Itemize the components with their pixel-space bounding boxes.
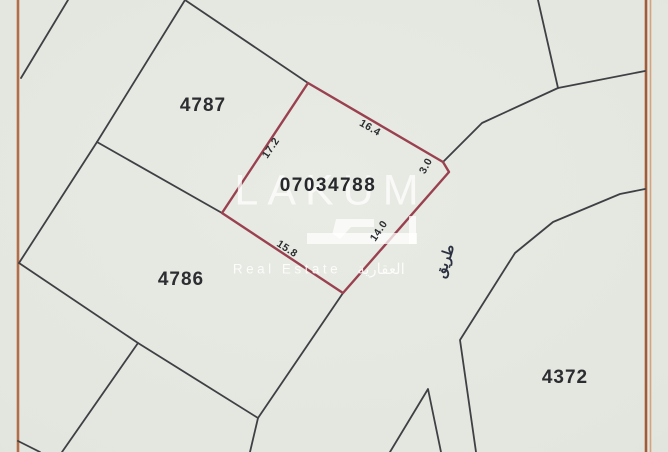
dim-label-16-4: 16.4 [357, 117, 382, 139]
plot-label-4372: 4372 [542, 367, 588, 389]
plot-label-4787: 4787 [180, 95, 226, 117]
highlighted-plot-number: 07034788 [280, 175, 377, 197]
plot-label-4786: 4786 [158, 269, 204, 291]
map-labels: 4787 4786 4372 07034788 17.2 16.4 3.0 14… [0, 0, 668, 452]
dim-label-3-0: 3.0 [417, 156, 435, 176]
dim-label-15-8: 15.8 [274, 238, 299, 260]
cadastral-map: LAKUM Real Estate العقارية 4787 4786 437… [0, 0, 668, 452]
road-label: طريق [432, 242, 459, 280]
dim-label-17-2: 17.2 [260, 135, 282, 160]
dim-label-14-0: 14.0 [368, 218, 390, 243]
